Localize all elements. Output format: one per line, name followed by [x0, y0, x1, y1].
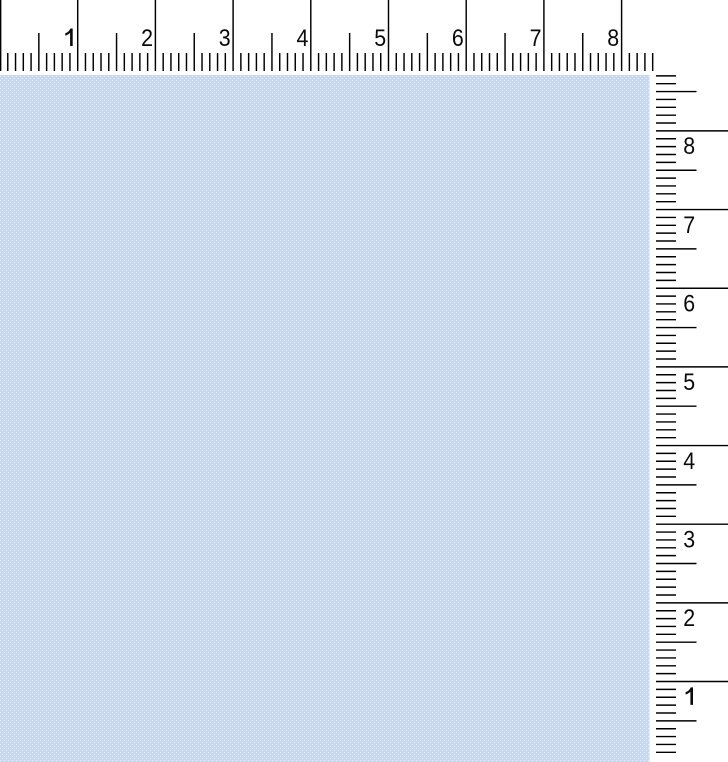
- svg-text:8: 8: [607, 25, 619, 52]
- svg-text:7: 7: [683, 212, 695, 239]
- svg-text:6: 6: [683, 291, 695, 318]
- svg-text:4: 4: [297, 25, 309, 52]
- svg-text:3: 3: [683, 527, 695, 554]
- svg-text:3: 3: [219, 25, 231, 52]
- svg-text:5: 5: [683, 369, 695, 396]
- svg-text:8: 8: [683, 133, 695, 160]
- svg-text:4: 4: [683, 448, 695, 475]
- svg-text:2: 2: [683, 605, 695, 632]
- svg-text:2: 2: [141, 25, 153, 52]
- svg-text:6: 6: [452, 25, 464, 52]
- svg-text:7: 7: [530, 25, 542, 52]
- svg-text:5: 5: [374, 25, 386, 52]
